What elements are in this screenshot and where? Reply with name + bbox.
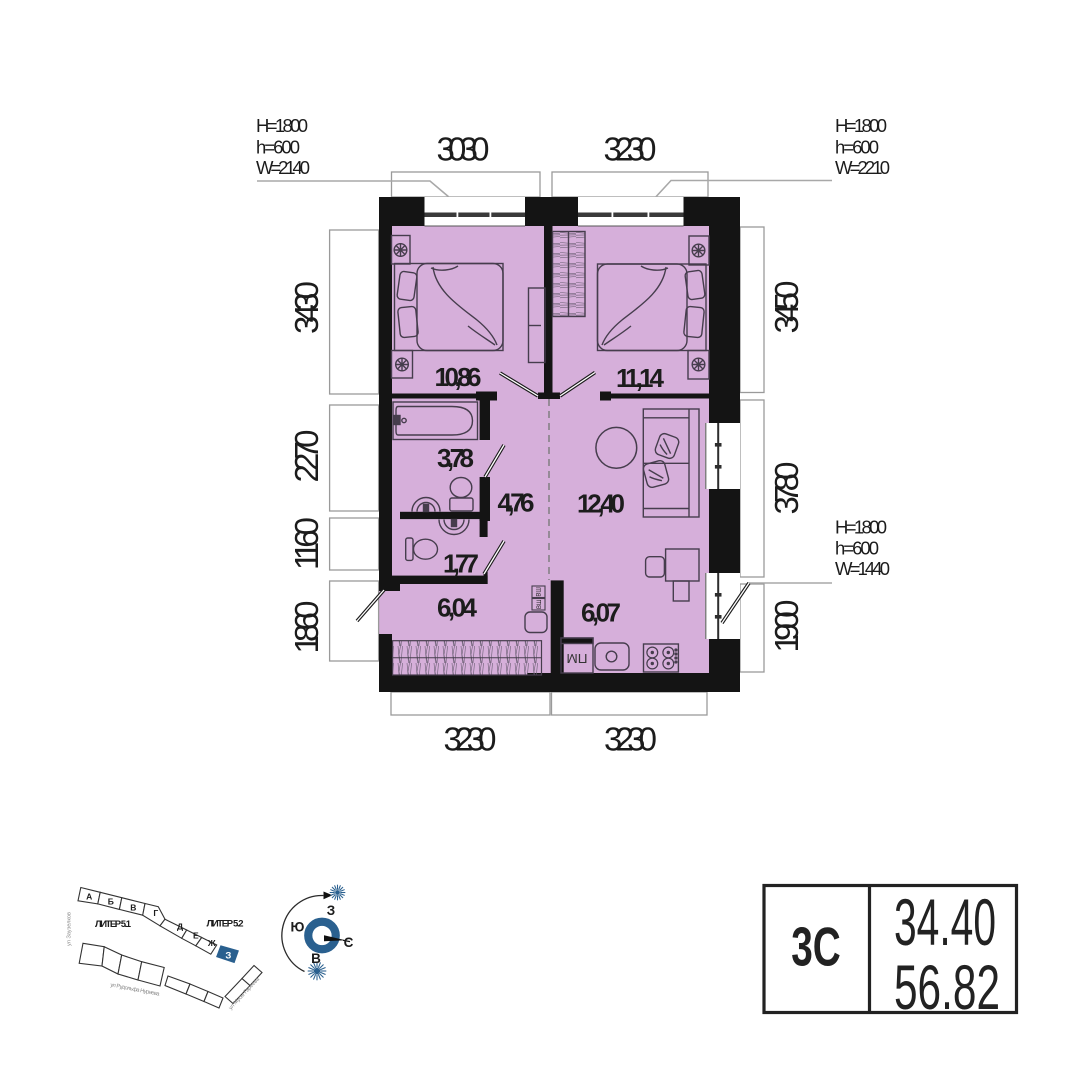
svg-text:3С: 3С [791, 916, 841, 978]
svg-text:З: З [225, 951, 231, 962]
svg-text:3230: 3230 [604, 131, 657, 168]
svg-text:3780: 3780 [768, 462, 805, 515]
svg-text:ЛИТЕР 5.1: ЛИТЕР 5.1 [95, 919, 132, 930]
svg-text:W=2210: W=2210 [835, 157, 890, 178]
svg-text:W=1440: W=1440 [835, 558, 890, 579]
svg-text:Е: Е [193, 931, 199, 941]
svg-text:Ж: Ж [207, 938, 216, 948]
svg-text:h=600: h=600 [835, 538, 879, 559]
svg-text:H=1800: H=1800 [835, 115, 887, 136]
svg-text:В: В [311, 951, 321, 966]
svg-text:А: А [86, 892, 92, 902]
svg-text:Ю: Ю [291, 920, 305, 935]
svg-text:1900: 1900 [768, 600, 805, 653]
svg-text:З: З [327, 903, 335, 918]
svg-text:Д: Д [177, 922, 183, 932]
svg-text:12,40: 12,40 [577, 489, 625, 519]
svg-text:ПМ: ПМ [567, 651, 588, 666]
svg-text:56.82: 56.82 [894, 953, 1000, 1023]
svg-text:3230: 3230 [604, 721, 657, 758]
svg-text:4,76: 4,76 [498, 488, 535, 518]
svg-text:3450: 3450 [768, 281, 805, 334]
svg-text:3430: 3430 [288, 281, 325, 334]
svg-text:1160: 1160 [288, 517, 325, 570]
svg-text:34.40: 34.40 [894, 885, 996, 959]
svg-text:11,14: 11,14 [616, 363, 665, 393]
svg-text:В: В [130, 903, 136, 913]
svg-text:H=1800: H=1800 [256, 115, 308, 136]
svg-text:2270: 2270 [288, 430, 325, 483]
svg-text:Б: Б [108, 897, 114, 907]
svg-text:h=600: h=600 [256, 137, 300, 158]
svg-text:ВШ: ВШ [537, 599, 543, 609]
svg-text:3230: 3230 [444, 721, 497, 758]
svg-text:6,07: 6,07 [581, 598, 621, 628]
svg-text:6,04: 6,04 [437, 593, 478, 623]
svg-text:ЛИТЕР 5.2: ЛИТЕР 5.2 [207, 919, 244, 930]
svg-text:Г: Г [153, 908, 158, 918]
svg-text:ВШ: ВШ [537, 587, 543, 597]
svg-text:3,78: 3,78 [437, 443, 474, 473]
svg-text:1860: 1860 [288, 601, 325, 654]
svg-text:h=600: h=600 [835, 137, 879, 158]
svg-text:W=2140: W=2140 [256, 157, 310, 178]
svg-text:10,86: 10,86 [435, 362, 482, 392]
svg-text:1,77: 1,77 [443, 549, 479, 579]
svg-text:H=1800: H=1800 [835, 517, 887, 538]
svg-text:С: С [344, 935, 354, 950]
svg-text:ул Заузелков: ул Заузелков [67, 912, 73, 946]
svg-text:3030: 3030 [437, 131, 490, 168]
